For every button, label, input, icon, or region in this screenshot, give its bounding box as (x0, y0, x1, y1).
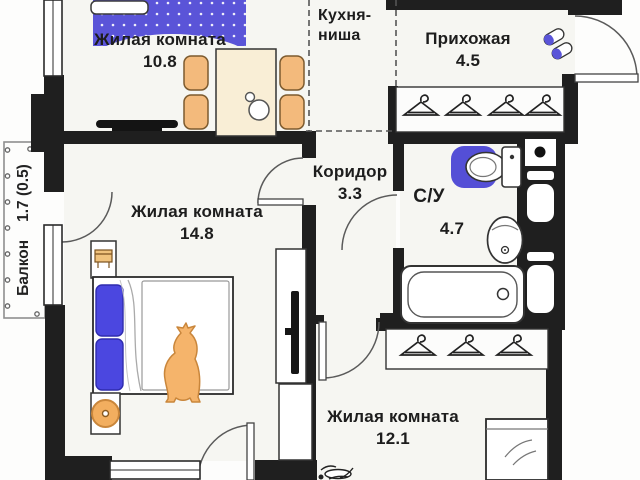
dining-table-icon (216, 49, 276, 136)
floor-plan-drawing (0, 0, 640, 480)
room-area: 1.7 (0.5) (15, 164, 33, 222)
wardrobe-hallway (396, 87, 564, 132)
tv-cabinet-icon (276, 249, 312, 460)
dresser-icon (91, 241, 116, 278)
floor-plan-image: Жилая комната 10.8 Кухня- ниша Прихожая … (0, 0, 640, 480)
room-label-balcony: Балкон 1.7 (0.5) (13, 140, 35, 320)
sink-icon (488, 217, 523, 263)
stool-icon (91, 393, 120, 434)
room-name: Балкон (15, 240, 33, 296)
wardrobe-living-3 (386, 329, 548, 369)
bathtub-icon (401, 266, 524, 323)
entry-door-arc (575, 16, 637, 78)
single-bed-icon (486, 419, 548, 480)
double-bed-icon (93, 277, 233, 394)
toilet-icon (451, 146, 521, 188)
